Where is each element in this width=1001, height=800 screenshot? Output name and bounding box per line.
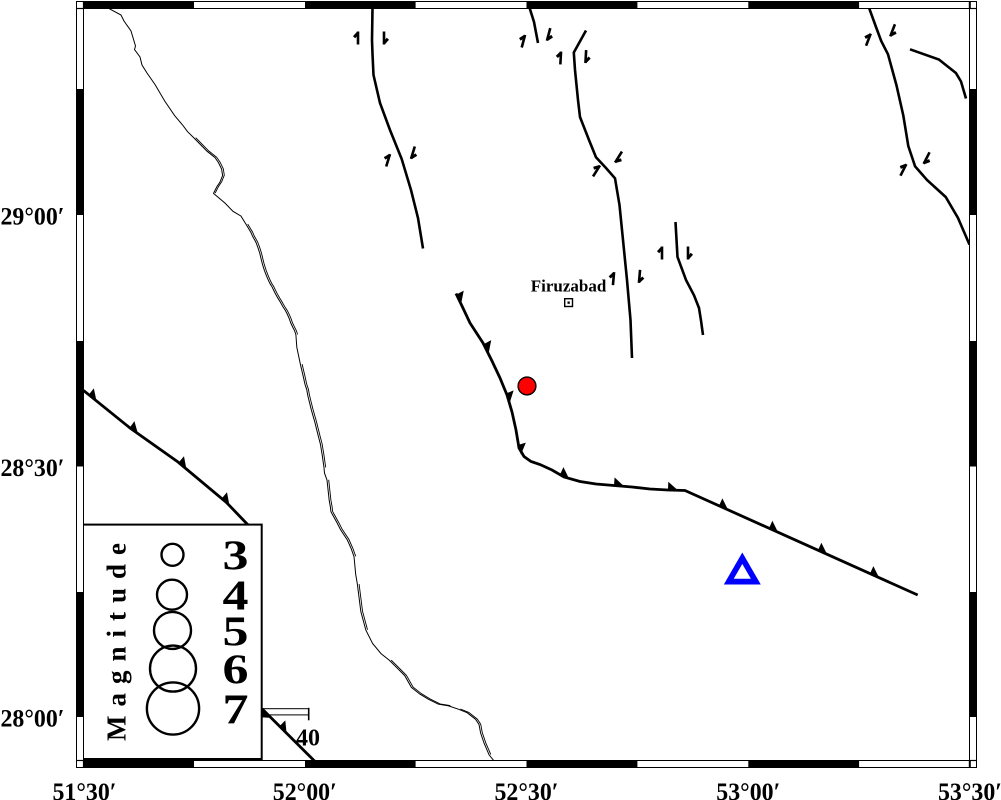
- svg-text:7: 7: [223, 688, 249, 734]
- svg-text:52°30′: 52°30′: [495, 779, 559, 800]
- svg-text:52°00′: 52°00′: [273, 779, 337, 800]
- svg-text:28°00′: 28°00′: [1, 706, 65, 733]
- svg-text:53°00′: 53°00′: [716, 779, 780, 800]
- svg-text:53°30′: 53°30′: [938, 779, 1001, 800]
- svg-text:Firuzabad: Firuzabad: [531, 277, 607, 296]
- svg-text:51°30′: 51°30′: [53, 779, 117, 800]
- svg-text:Magnitude: Magnitude: [101, 534, 131, 741]
- svg-text:28°30′: 28°30′: [1, 455, 65, 482]
- svg-text:29°00′: 29°00′: [1, 203, 65, 230]
